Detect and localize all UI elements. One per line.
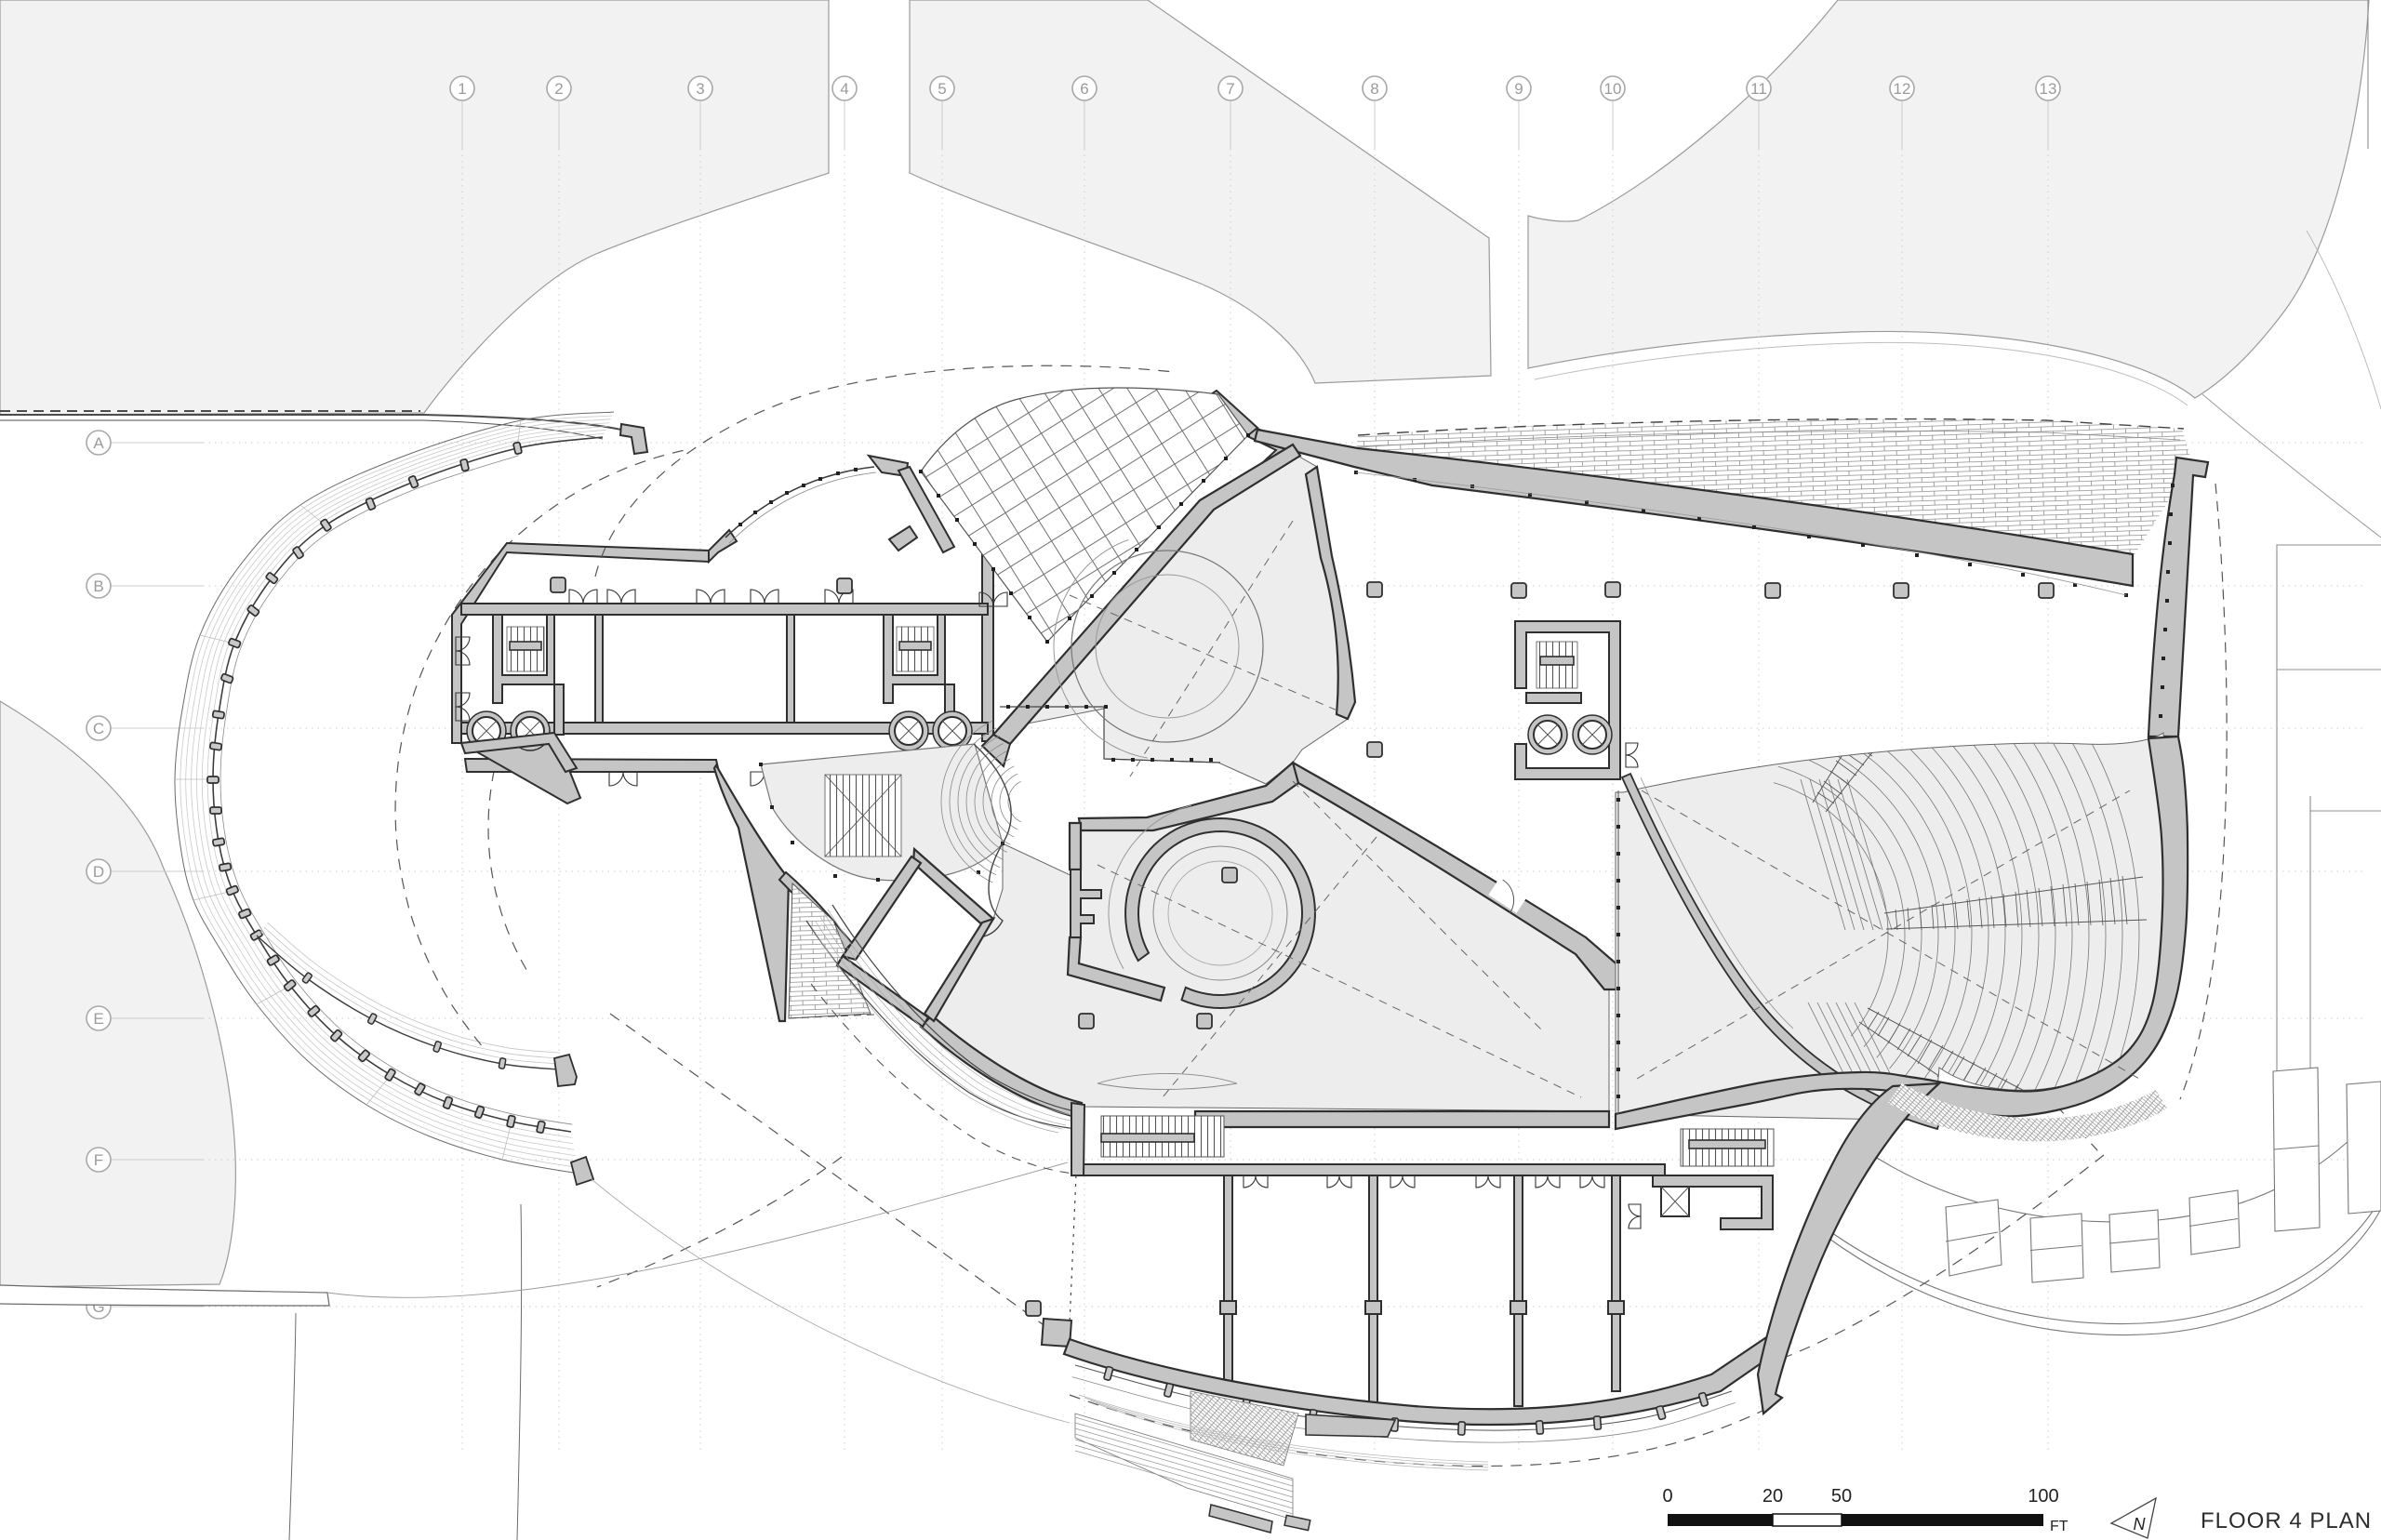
svg-text:20: 20 <box>1762 1486 1783 1507</box>
svg-text:6: 6 <box>1080 80 1088 98</box>
svg-text:A: A <box>93 434 104 452</box>
svg-text:F: F <box>94 1151 103 1169</box>
svg-text:N: N <box>2134 1515 2147 1533</box>
svg-text:50: 50 <box>1831 1486 1852 1507</box>
svg-text:4: 4 <box>840 80 848 98</box>
svg-text:FT: FT <box>2050 1519 2068 1534</box>
svg-text:100: 100 <box>2028 1486 2058 1507</box>
svg-text:8: 8 <box>1370 80 1378 98</box>
svg-text:0: 0 <box>1662 1486 1672 1507</box>
svg-text:1: 1 <box>458 80 466 98</box>
svg-text:11: 11 <box>1750 80 1767 98</box>
svg-text:FLOOR 4 PLAN: FLOOR 4 PLAN <box>2201 1508 2372 1533</box>
svg-text:13: 13 <box>2040 80 2057 98</box>
svg-text:7: 7 <box>1226 80 1234 98</box>
svg-text:E: E <box>93 1010 103 1028</box>
svg-text:C: C <box>93 720 104 737</box>
svg-text:B: B <box>93 577 103 595</box>
svg-text:3: 3 <box>696 80 704 98</box>
svg-text:9: 9 <box>1514 80 1523 98</box>
svg-text:5: 5 <box>938 80 946 98</box>
svg-text:10: 10 <box>1604 80 1622 98</box>
svg-text:2: 2 <box>554 80 563 98</box>
svg-text:D: D <box>93 863 104 881</box>
svg-text:12: 12 <box>1894 80 1911 98</box>
